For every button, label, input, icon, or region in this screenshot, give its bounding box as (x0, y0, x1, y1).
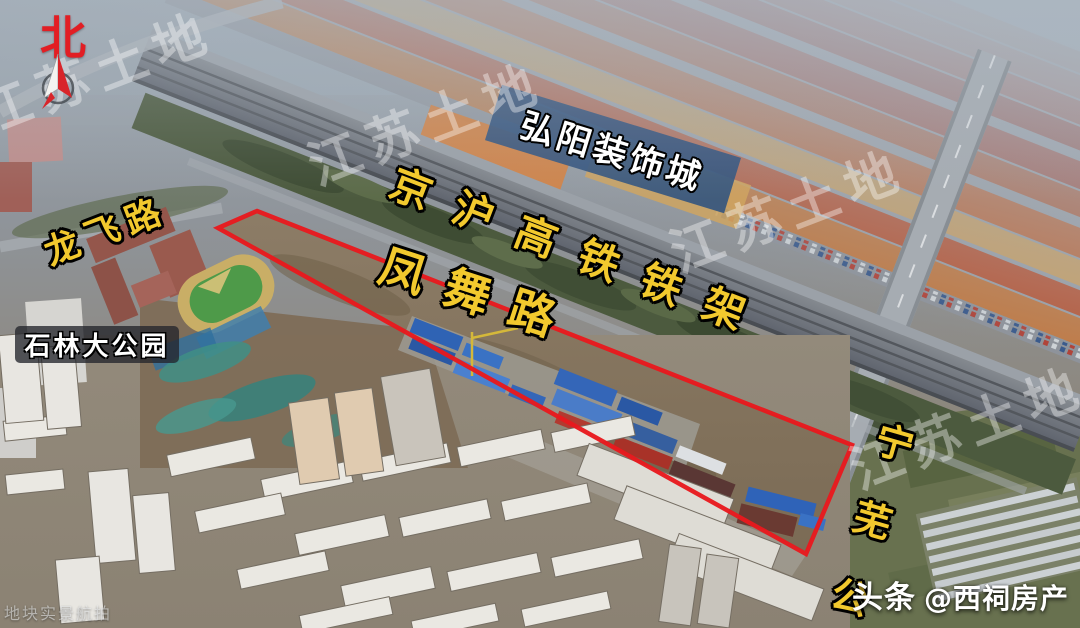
credit-platform: 头条 (852, 580, 916, 616)
compass-arrow-icon (34, 52, 82, 110)
credit-badge: 头条@西祠房产 (852, 572, 1069, 617)
credit-account: @西祠房产 (924, 582, 1069, 615)
label-shilin-park: 石林大公园 (15, 326, 179, 363)
corner-note: 地块实景航拍 (4, 600, 112, 624)
annotated-aerial-photo: 江苏土地 江苏土地 江苏土地 江苏土地 北 弘阳装饰城 京沪高铁铁架 凤舞路 龙… (0, 0, 1080, 628)
